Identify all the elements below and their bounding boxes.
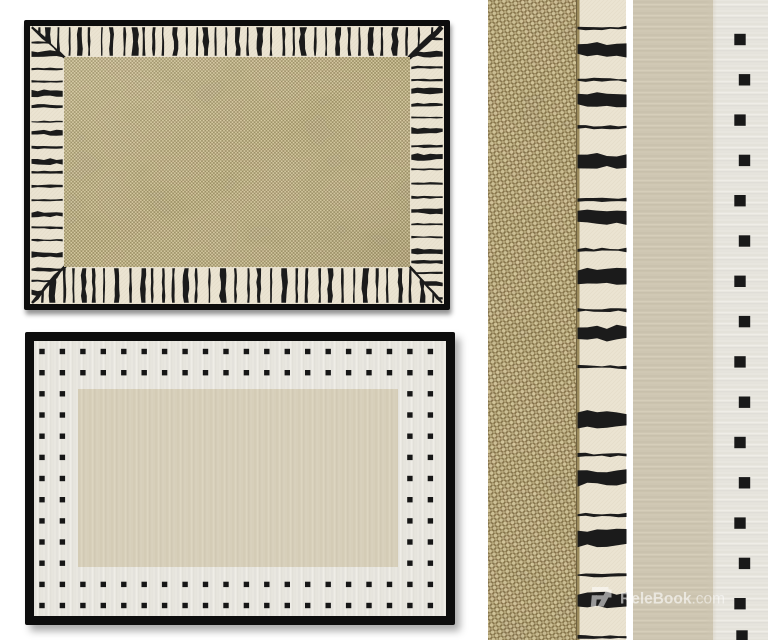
- svg-text:ReleBook.com: ReleBook.com: [620, 591, 725, 608]
